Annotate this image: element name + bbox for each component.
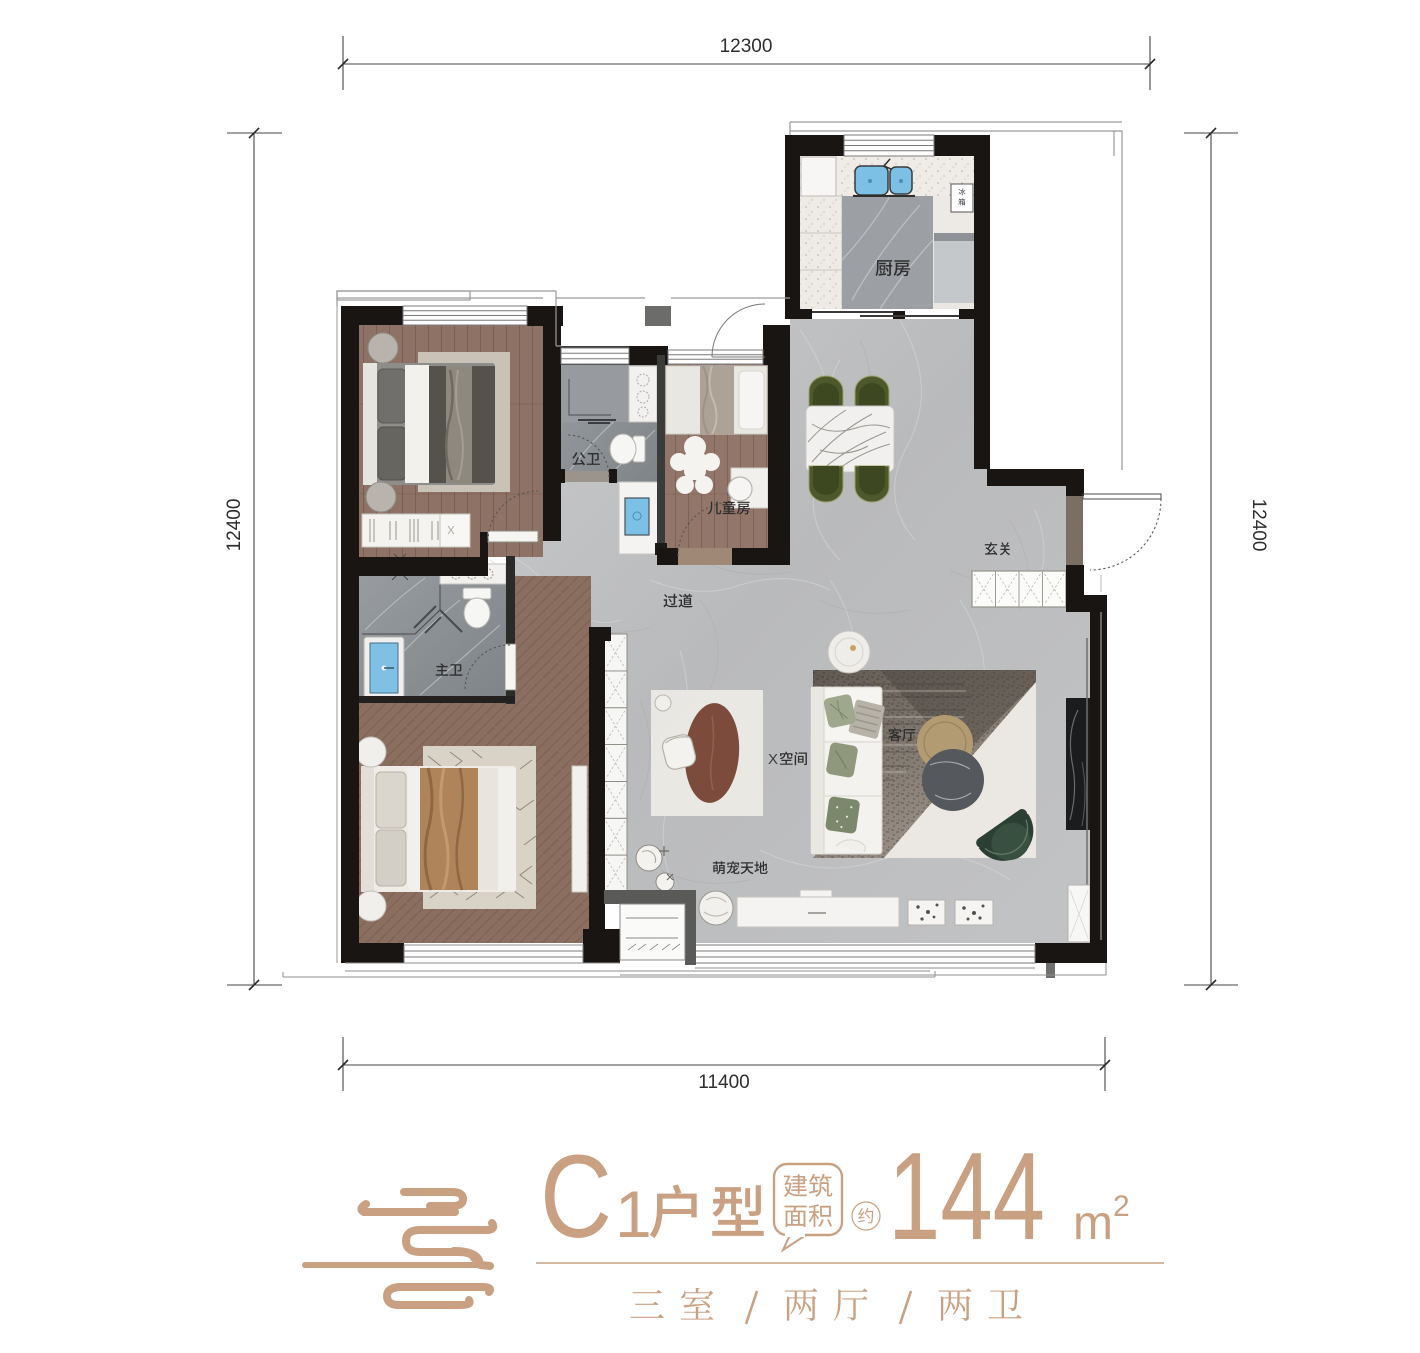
svg-text:12400: 12400: [1248, 499, 1269, 552]
svg-text:1: 1: [615, 1177, 652, 1251]
svg-text:m: m: [1073, 1197, 1113, 1250]
svg-text:12400: 12400: [224, 499, 245, 552]
svg-text:12300: 12300: [720, 36, 773, 57]
svg-text:X: X: [768, 751, 778, 768]
svg-text:144: 144: [888, 1128, 1045, 1266]
svg-text:11400: 11400: [698, 1072, 749, 1093]
svg-text:2: 2: [1113, 1190, 1130, 1223]
svg-text:C: C: [540, 1131, 612, 1263]
